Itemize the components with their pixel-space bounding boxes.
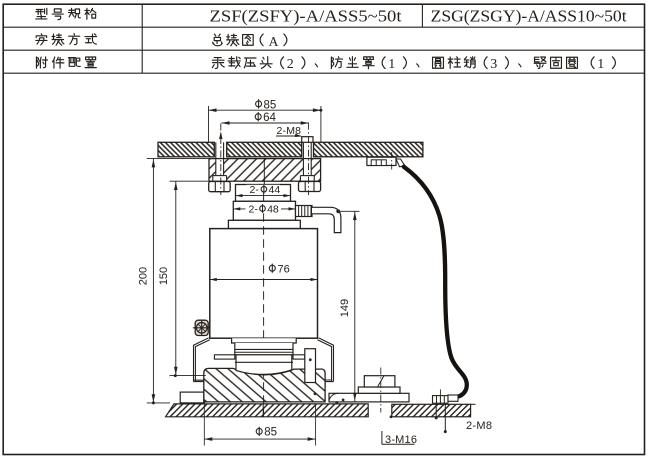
- svg-text:200: 200: [138, 267, 150, 285]
- svg-text:A: A: [269, 34, 279, 49]
- svg-text:85: 85: [264, 427, 277, 439]
- svg-text:64: 64: [263, 112, 276, 124]
- svg-text:76: 76: [278, 264, 290, 276]
- svg-text:1: 1: [597, 57, 604, 72]
- svg-text:44: 44: [269, 184, 281, 196]
- svg-text:ZSF(ZSFY)-A/ASS5~50t: ZSF(ZSFY)-A/ASS5~50t: [210, 6, 402, 25]
- svg-text:3-M16: 3-M16: [385, 434, 417, 446]
- svg-text:149: 149: [339, 299, 351, 317]
- svg-text:ZSG(ZSGY)-A/ASS10~50t: ZSG(ZSGY)-A/ASS10~50t: [431, 6, 627, 25]
- svg-text:1: 1: [388, 57, 395, 72]
- svg-text:150: 150: [158, 267, 170, 285]
- svg-text:2: 2: [287, 57, 294, 72]
- svg-text:2-M8: 2-M8: [466, 420, 492, 432]
- svg-text:48: 48: [267, 203, 279, 215]
- svg-text:2-: 2-: [250, 184, 260, 196]
- svg-text:85: 85: [264, 99, 277, 111]
- svg-text:3: 3: [490, 57, 497, 72]
- svg-text:2-: 2-: [249, 203, 259, 215]
